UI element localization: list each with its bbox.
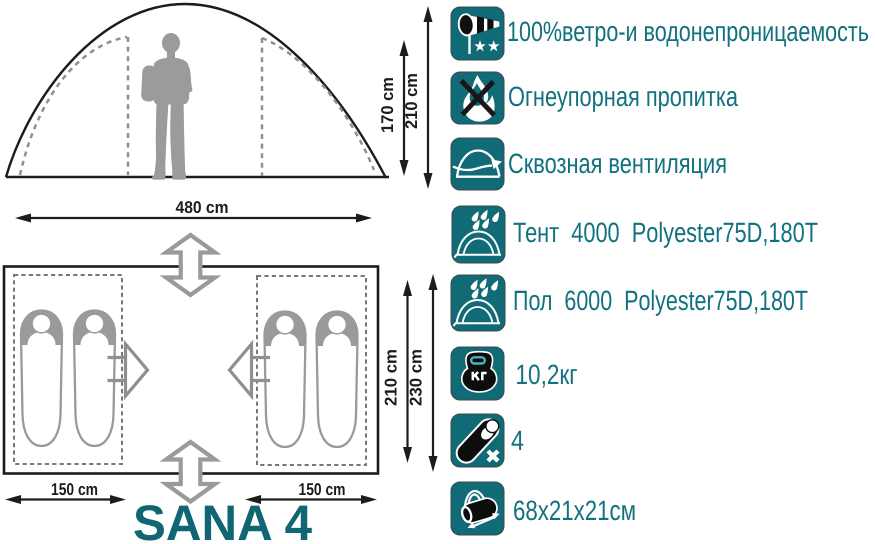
svg-text:Тент 4000 Polyester75D,180T: Тент 4000 Polyester75D,180T [513,217,818,248]
svg-text:10,2кг: 10,2кг [516,359,578,390]
svg-text:SANA 4: SANA 4 [133,495,312,544]
svg-text:Сквозная вентиляция: Сквозная вентиляция [508,148,727,179]
svg-text:170 cm: 170 cm [378,77,397,133]
svg-text:100%ветро-и водонепроницаемост: 100%ветро-и водонепроницаемость [507,16,869,47]
svg-text:210 cm: 210 cm [382,349,401,406]
svg-text:Пол 6000 Polyester75D,180T: Пол 6000 Polyester75D,180T [513,285,808,316]
svg-text:4: 4 [511,425,524,456]
svg-text:68x21x21см: 68x21x21см [513,495,636,526]
svg-text:480 cm: 480 cm [176,198,229,217]
svg-text:230 cm: 230 cm [407,349,426,406]
svg-text:150 cm: 150 cm [51,480,98,499]
svg-text:210 cm: 210 cm [402,73,421,129]
svg-text:Огнеупорная пропитка: Огнеупорная пропитка [508,81,738,112]
